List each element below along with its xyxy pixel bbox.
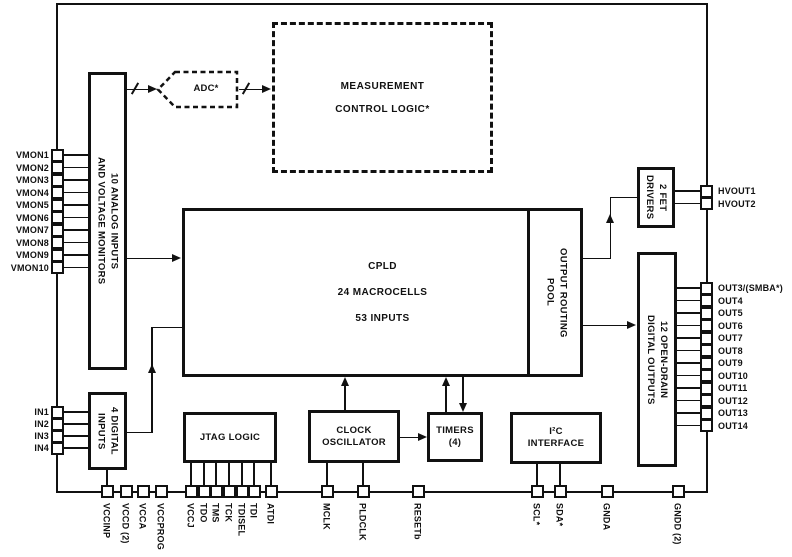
pin-label: OUT14 — [718, 421, 748, 431]
pin-label: VCCPROG — [156, 503, 166, 550]
pin-wire — [62, 435, 89, 437]
block-diagram: 10 ANALOG INPUTS AND VOLTAGE MONITORS AD… — [0, 0, 792, 557]
pin-wire — [675, 412, 701, 414]
pin-label: VMON6 — [2, 213, 49, 223]
pin-label: VMON7 — [2, 225, 49, 235]
pin-wire — [62, 242, 89, 244]
timers-block: TIMERS (4) — [427, 412, 483, 462]
analog-monitors-block: 10 ANALOG INPUTS AND VOLTAGE MONITORS — [88, 72, 127, 370]
pin-square — [412, 485, 425, 498]
adc-label: ADC* — [175, 83, 237, 94]
pin-square — [672, 485, 685, 498]
pin-square — [101, 485, 114, 498]
pin-label: VMON2 — [2, 163, 49, 173]
arrowhead — [148, 364, 156, 373]
pin-label: HVOUT2 — [718, 199, 756, 209]
arrowhead — [341, 377, 349, 386]
i2c-interface-label: I²C INTERFACE — [528, 426, 585, 450]
pin-label: SDA* — [555, 503, 565, 526]
pin-square — [700, 185, 713, 198]
pin-square — [700, 332, 713, 345]
wire — [203, 463, 205, 486]
pin-wire — [62, 167, 89, 169]
pin-square — [155, 485, 168, 498]
pin-wire — [675, 375, 701, 377]
wire — [344, 385, 346, 410]
pin-wire — [62, 217, 89, 219]
pin-wire — [675, 425, 701, 427]
pin-label: TDISEL — [237, 503, 247, 536]
wire — [127, 432, 153, 434]
pin-label: VMON10 — [2, 263, 49, 273]
wire — [610, 197, 637, 199]
timers-label: TIMERS (4) — [436, 425, 474, 449]
pin-square — [51, 249, 64, 262]
wire — [127, 258, 173, 260]
arrowhead — [459, 403, 467, 412]
pin-label: RESETb — [413, 503, 423, 540]
pin-label: GNDD (2) — [673, 503, 683, 545]
pin-wire — [675, 400, 701, 402]
pin-label: OUT6 — [718, 321, 743, 331]
pin-wire — [62, 192, 89, 194]
pin-square — [700, 382, 713, 395]
pin-label: VMON8 — [2, 238, 49, 248]
output-routing-pool-label: OUTPUT ROUTING POOL — [544, 248, 570, 338]
pin-label: OUT11 — [718, 383, 748, 393]
pin-square — [700, 394, 713, 407]
pin-wire — [675, 300, 701, 302]
pin-square — [700, 197, 713, 210]
cpld-macrocells-label: 24 MACROCELLS — [338, 288, 428, 298]
pin-square — [700, 319, 713, 332]
pin-label: OUT12 — [718, 396, 748, 406]
pin-label: VCCINP — [102, 503, 112, 538]
wire — [151, 327, 182, 329]
pin-square — [321, 485, 334, 498]
i2c-interface-block: I²C INTERFACE — [510, 412, 602, 464]
pin-wire — [62, 254, 89, 256]
wire — [151, 327, 153, 432]
arrowhead — [172, 254, 181, 262]
pin-label: OUT13 — [718, 408, 748, 418]
pin-square — [265, 485, 278, 498]
pin-wire — [675, 387, 701, 389]
pin-wire — [675, 203, 701, 205]
pin-wire — [62, 447, 89, 449]
pin-wire — [62, 267, 89, 269]
pin-wire — [675, 312, 701, 314]
pin-wire — [62, 154, 89, 156]
pin-label: OUT9 — [718, 358, 743, 368]
pin-label: VMON9 — [2, 250, 49, 260]
pin-square — [700, 282, 713, 295]
analog-monitors-label: 10 ANALOG INPUTS AND VOLTAGE MONITORS — [95, 157, 121, 284]
clock-oscillator-label: CLOCK OSCILLATOR — [322, 425, 386, 449]
pin-label: TCK — [224, 503, 234, 522]
wire — [445, 385, 447, 412]
pin-label: VMON5 — [2, 200, 49, 210]
cpld-label: CPLD — [368, 262, 397, 272]
pin-label: OUT3/(SMBA*) — [718, 283, 783, 293]
pin-label: OUT8 — [718, 346, 743, 356]
pin-square — [51, 442, 64, 455]
pin-wire — [62, 229, 89, 231]
pin-square — [700, 344, 713, 357]
pin-wire — [675, 190, 701, 192]
pin-square — [51, 199, 64, 212]
pin-label: OUT4 — [718, 296, 743, 306]
pin-square — [51, 211, 64, 224]
pin-square — [51, 236, 64, 249]
pin-wire — [675, 325, 701, 327]
pin-square — [531, 485, 544, 498]
pin-square — [51, 261, 64, 274]
wire — [400, 437, 419, 439]
jtag-label: JTAG LOGIC — [200, 432, 260, 444]
pin-label: MCLK — [322, 503, 332, 530]
wire — [228, 463, 230, 486]
pin-square — [700, 407, 713, 420]
pin-square — [554, 485, 567, 498]
wire — [462, 377, 464, 404]
wire — [253, 463, 255, 486]
pin-square — [700, 419, 713, 432]
pin-label: TMS — [211, 503, 221, 523]
pin-label: IN2 — [2, 419, 49, 429]
wire — [326, 463, 328, 486]
wire — [190, 463, 192, 486]
cpld-text: CPLD 24 MACROCELLS 53 INPUTS — [338, 262, 428, 324]
pin-label: OUT10 — [718, 371, 748, 381]
pin-square — [210, 485, 223, 498]
pin-wire — [675, 337, 701, 339]
pin-wire — [675, 287, 701, 289]
pin-wire — [62, 411, 89, 413]
wire — [536, 464, 538, 486]
pin-wire — [62, 204, 89, 206]
pin-wire — [62, 423, 89, 425]
pin-label: VCCD (2) — [121, 503, 131, 544]
pin-square — [700, 369, 713, 382]
pin-wire — [675, 350, 701, 352]
pin-label: VMON4 — [2, 188, 49, 198]
digital-inputs-block: 4 DIGITAL INPUTS — [88, 392, 127, 470]
pin-square — [223, 485, 236, 498]
pin-label: VCCJ — [186, 503, 196, 528]
fet-drivers-block: 2 FET DRIVERS — [637, 167, 675, 228]
pin-square — [51, 174, 64, 187]
measurement-logic-label: MEASUREMENT CONTROL LOGIC* — [335, 75, 430, 121]
pin-label: IN4 — [2, 443, 49, 453]
pin-label: IN3 — [2, 431, 49, 441]
pin-label: SCL* — [532, 503, 542, 525]
pin-square — [137, 485, 150, 498]
wire — [215, 463, 217, 486]
pin-square — [700, 307, 713, 320]
pin-square — [700, 294, 713, 307]
arrowhead — [262, 85, 271, 93]
arrowhead — [606, 214, 614, 223]
pin-label: PLDCLK — [358, 503, 368, 541]
pin-label: GNDA — [602, 503, 612, 530]
arrowhead — [442, 377, 450, 386]
pin-label: IN1 — [2, 407, 49, 417]
wire — [583, 325, 628, 327]
digital-inputs-label: 4 DIGITAL INPUTS — [95, 407, 121, 455]
arrowhead — [627, 321, 636, 329]
pin-label: VMON3 — [2, 175, 49, 185]
pin-square — [357, 485, 370, 498]
pin-square — [51, 161, 64, 174]
clock-oscillator-block: CLOCK OSCILLATOR — [308, 410, 400, 463]
digital-outputs-label: 12 OPEN-DRAIN DIGITAL OUTPUTS — [644, 315, 670, 405]
wire — [610, 197, 612, 258]
wire — [362, 463, 364, 486]
pin-label: VMON1 — [2, 150, 49, 160]
pin-wire — [62, 179, 89, 181]
wire — [583, 258, 611, 260]
measurement-logic-block: MEASUREMENT CONTROL LOGIC* — [272, 22, 493, 173]
pin-square — [185, 485, 198, 498]
digital-outputs-block: 12 OPEN-DRAIN DIGITAL OUTPUTS — [637, 252, 677, 467]
fet-drivers-label: 2 FET DRIVERS — [643, 175, 669, 219]
wire — [559, 464, 561, 486]
pin-label: OUT7 — [718, 333, 743, 343]
pin-label: TDO — [199, 503, 209, 523]
arrowhead — [418, 433, 427, 441]
cpld-block: CPLD 24 MACROCELLS 53 INPUTS — [182, 208, 583, 377]
output-routing-pool-block: OUTPUT ROUTING POOL — [530, 208, 583, 377]
pin-square — [51, 224, 64, 237]
pin-square — [120, 485, 133, 498]
pin-label: ATDI — [266, 503, 276, 524]
pin-square — [248, 485, 261, 498]
jtag-block: JTAG LOGIC — [183, 412, 277, 463]
pin-square — [51, 149, 64, 162]
pin-label: HVOUT1 — [718, 186, 756, 196]
wire — [241, 463, 243, 486]
wire — [106, 470, 108, 486]
cpld-inputs-label: 53 INPUTS — [355, 314, 409, 324]
pin-label: OUT5 — [718, 308, 743, 318]
pin-square — [700, 357, 713, 370]
wire — [127, 89, 149, 91]
pin-label: TDI — [249, 503, 259, 518]
pin-square — [51, 186, 64, 199]
wire — [270, 463, 272, 486]
pin-label: VCCA — [138, 503, 148, 529]
pin-square — [601, 485, 614, 498]
pin-wire — [675, 362, 701, 364]
